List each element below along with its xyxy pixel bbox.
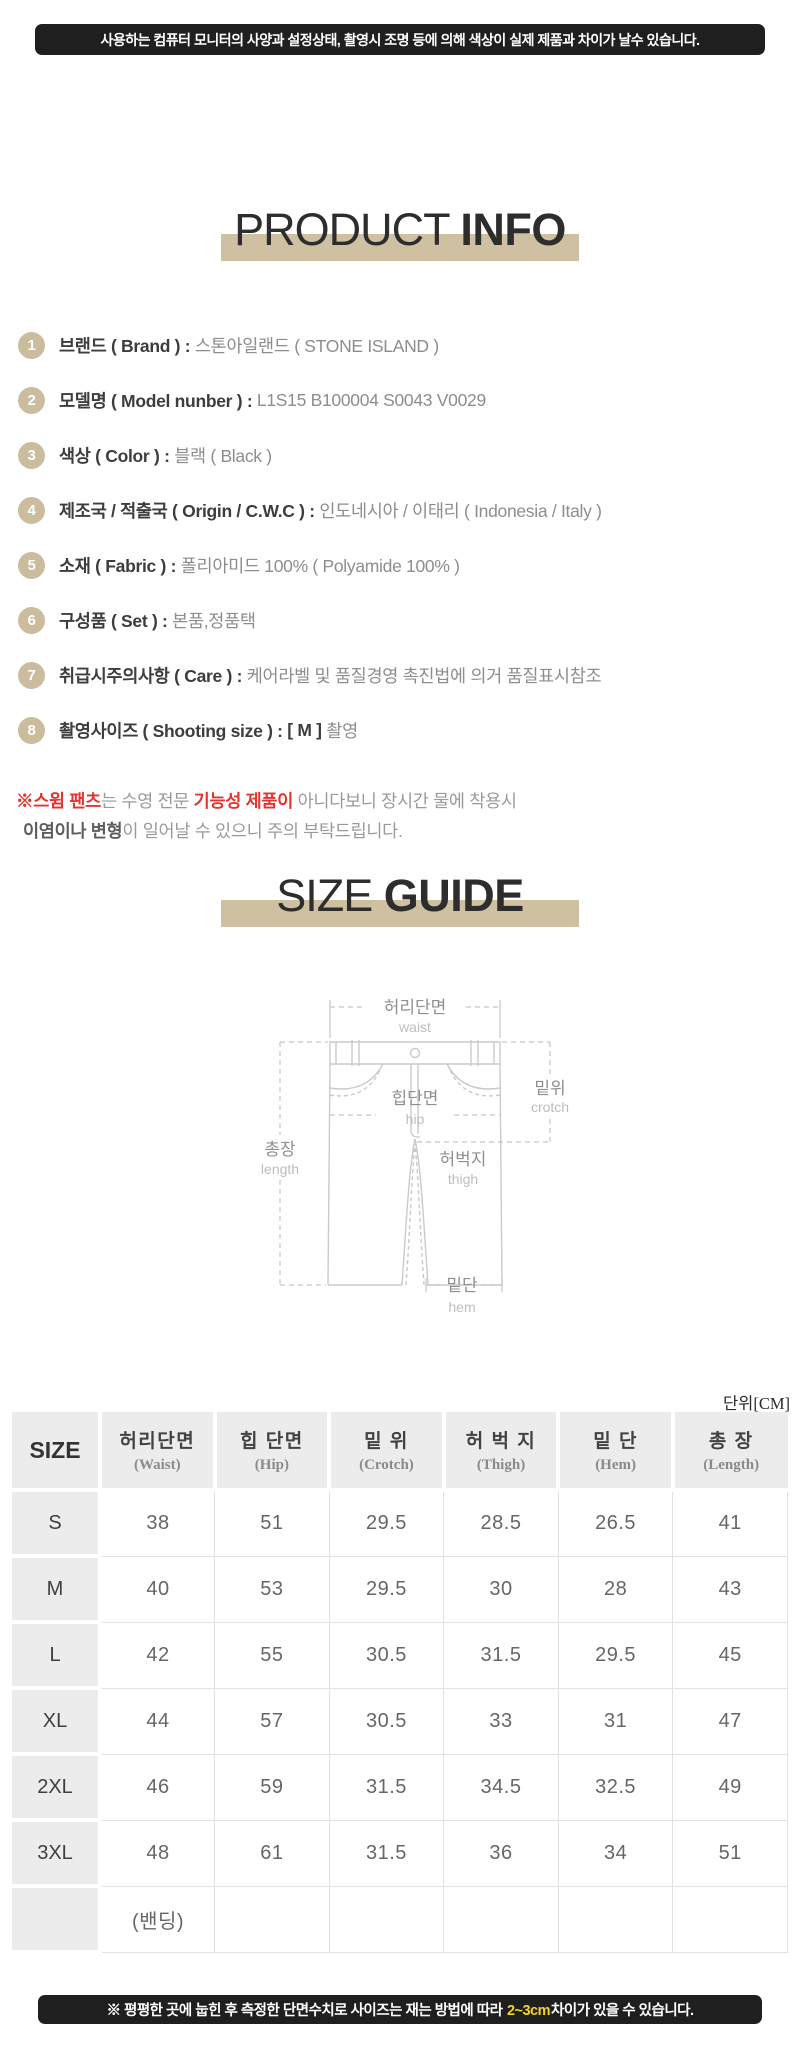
size-cell bbox=[12, 1886, 100, 1952]
size-table-row: S385129.528.526.541 bbox=[12, 1490, 788, 1556]
value-cell: 48 bbox=[100, 1820, 215, 1886]
number-badge: 6 bbox=[18, 607, 45, 634]
thigh-label-en: thigh bbox=[448, 1171, 478, 1187]
info-label: 브랜드 ( Brand ) : bbox=[59, 333, 195, 358]
info-item-brand: 1브랜드 ( Brand ) : 스톤아일랜드 ( STONE ISLAND ) bbox=[0, 318, 800, 373]
hem-label-ko: 밑단 bbox=[446, 1276, 478, 1295]
banner-highlight: 2~3cm bbox=[506, 2003, 551, 2019]
value-cell: 47 bbox=[673, 1688, 788, 1754]
header-label-ko: 힙 단면 bbox=[217, 1426, 328, 1453]
value-cell bbox=[329, 1886, 444, 1952]
size-table-header-cell: 총 장(Length) bbox=[673, 1412, 788, 1490]
header-label-en: (Hem) bbox=[560, 1457, 671, 1474]
title-light-part: PRODUCT bbox=[234, 204, 460, 255]
value-cell: 33 bbox=[444, 1688, 559, 1754]
info-value: 인도네시아 / 이태리 ( Indonesia / Italy ) bbox=[319, 498, 601, 523]
waist-label-en: waist bbox=[398, 1019, 431, 1035]
size-table-header-cell: 허리단면(Waist) bbox=[100, 1412, 215, 1490]
hem-label-en: hem bbox=[448, 1299, 475, 1315]
info-item-care: 7취급시주의사항 ( Care ) : 케어라벨 및 품질경영 촉진법에 의거 … bbox=[0, 648, 800, 703]
notice-text: ※ 평평한 곳에 눕힌 후 측정한 단면수치로 사이즈는 재는 방법에 따라 2… bbox=[106, 1999, 693, 2020]
value-cell: 32.5 bbox=[558, 1754, 673, 1820]
warning-line-2: 이염이나 변형이 일어날 수 있으니 주의 부탁드립니다. bbox=[16, 816, 517, 846]
value-cell: 31.5 bbox=[329, 1820, 444, 1886]
warning-gray-text: 아니다보니 장시간 물에 착용시 bbox=[293, 791, 517, 811]
length-label-en: length bbox=[261, 1161, 299, 1177]
value-cell: 45 bbox=[673, 1622, 788, 1688]
number-badge: 8 bbox=[18, 717, 45, 744]
size-cell: 2XL bbox=[12, 1754, 100, 1820]
value-cell: 30 bbox=[444, 1556, 559, 1622]
info-value: L1S15 B100004 S0043 V0029 bbox=[257, 390, 486, 411]
number-badge: 4 bbox=[18, 497, 45, 524]
value-cell: 29.5 bbox=[329, 1490, 444, 1556]
title-bold-part: INFO bbox=[460, 204, 566, 255]
size-table-header-row: SIZE허리단면(Waist)힙 단면(Hip)밑 위(Crotch)허 벅 지… bbox=[12, 1412, 788, 1490]
value-cell: 26.5 bbox=[558, 1490, 673, 1556]
header-label-ko: 허 벅 지 bbox=[446, 1426, 557, 1453]
length-label-ko: 총장 bbox=[264, 1140, 296, 1159]
value-cell bbox=[444, 1886, 559, 1952]
info-value: 블랙 ( Black ) bbox=[174, 443, 272, 468]
crotch-label-en: crotch bbox=[531, 1099, 569, 1115]
banner-text-post: 차이가 있을 수 있습니다. bbox=[551, 2003, 694, 2019]
value-cell: 41 bbox=[673, 1490, 788, 1556]
value-cell: 31.5 bbox=[444, 1622, 559, 1688]
product-info-list: 1브랜드 ( Brand ) : 스톤아일랜드 ( STONE ISLAND )… bbox=[0, 318, 800, 758]
header-label-en: (Length) bbox=[675, 1457, 788, 1474]
size-guide-title: SIZE GUIDE bbox=[0, 866, 800, 928]
value-cell: 28 bbox=[558, 1556, 673, 1622]
measurement-tolerance-banner: ※ 평평한 곳에 눕힌 후 측정한 단면수치로 사이즈는 재는 방법에 따라 2… bbox=[38, 1995, 762, 2024]
unit-label: 단위[CM] bbox=[723, 1390, 790, 1414]
size-cell: S bbox=[12, 1490, 100, 1556]
value-cell: 55 bbox=[215, 1622, 330, 1688]
header-label-en: (Hip) bbox=[217, 1457, 328, 1474]
header-label-en: (Thigh) bbox=[446, 1457, 557, 1474]
value-cell: 30.5 bbox=[329, 1622, 444, 1688]
info-label: 제조국 / 적출국 ( Origin / C.W.C ) : bbox=[59, 498, 319, 523]
header-label-en: (Waist) bbox=[102, 1457, 213, 1474]
header-label-en: (Crotch) bbox=[331, 1457, 442, 1474]
info-value-dark: [ M ] bbox=[287, 720, 326, 741]
number-badge: 2 bbox=[18, 387, 45, 414]
info-item-color: 3색상 ( Color ) : 블랙 ( Black ) bbox=[0, 428, 800, 483]
value-cell: 51 bbox=[673, 1820, 788, 1886]
info-label: 소재 ( Fabric ) : bbox=[59, 553, 181, 578]
value-cell: 36 bbox=[444, 1820, 559, 1886]
info-item-set: 6구성품 ( Set ) : 본품,정품택 bbox=[0, 593, 800, 648]
info-value: 폴리아미드 100% ( Polyamide 100% ) bbox=[181, 553, 460, 578]
thigh-label-ko: 허벅지 bbox=[440, 1150, 487, 1169]
warning-gray-text: 는 수영 전문 bbox=[101, 791, 194, 811]
value-cell: 43 bbox=[673, 1556, 788, 1622]
value-cell: 38 bbox=[100, 1490, 215, 1556]
size-table-header-cell: 밑 위(Crotch) bbox=[329, 1412, 444, 1490]
info-label: 취급시주의사항 ( Care ) : bbox=[59, 663, 247, 688]
value-cell: 30.5 bbox=[329, 1688, 444, 1754]
value-cell bbox=[558, 1886, 673, 1952]
info-label: 모델명 ( Model nunber ) : bbox=[59, 388, 257, 413]
value-cell: 61 bbox=[215, 1820, 330, 1886]
info-value: 촬영 bbox=[326, 718, 358, 743]
warning-red-text: ※스윔 팬츠 bbox=[16, 791, 101, 811]
header-label-ko: 밑 단 bbox=[560, 1426, 671, 1453]
pants-measurement-diagram: 허리단면 waist 힙단면 hip 밑위 crotch 총장 length 허… bbox=[140, 952, 660, 1350]
product-info-title: PRODUCT INFO bbox=[0, 200, 800, 262]
info-item-origin: 4제조국 / 적출국 ( Origin / C.W.C ) : 인도네시아 / … bbox=[0, 483, 800, 538]
title-bold-part: GUIDE bbox=[384, 870, 524, 921]
value-cell: 46 bbox=[100, 1754, 215, 1820]
warning-red-text: 기능성 제품이 bbox=[194, 791, 293, 811]
size-table-header-cell: 힙 단면(Hip) bbox=[215, 1412, 330, 1490]
info-value: 케어라벨 및 품질경영 촉진법에 의거 품질표시참조 bbox=[247, 663, 602, 688]
size-table-row: 2XL465931.534.532.549 bbox=[12, 1754, 788, 1820]
banner-text-pre: ※ 평평한 곳에 눕힌 후 측정한 단면수치로 사이즈는 재는 방법에 따라 bbox=[106, 2003, 506, 2019]
size-table-row: (밴딩) bbox=[12, 1886, 788, 1952]
header-label-ko: 허리단면 bbox=[102, 1426, 213, 1453]
info-label: 촬영사이즈 ( Shooting size ) : bbox=[59, 718, 287, 743]
size-cell: 3XL bbox=[12, 1820, 100, 1886]
value-cell: 44 bbox=[100, 1688, 215, 1754]
header-label-ko: 총 장 bbox=[675, 1426, 788, 1453]
warning-line-1: ※스윔 팬츠는 수영 전문 기능성 제품이 아니다보니 장시간 물에 착용시 bbox=[16, 786, 517, 816]
value-cell: 57 bbox=[215, 1688, 330, 1754]
product-detail-page: 사용하는 컴퓨터 모니터의 사양과 설정상태, 촬영시 조명 등에 의해 색상이… bbox=[0, 0, 800, 2065]
info-value: 스톤아일랜드 ( STONE ISLAND ) bbox=[195, 333, 439, 358]
value-cell: 49 bbox=[673, 1754, 788, 1820]
info-item-shooting-size: 8촬영사이즈 ( Shooting size ) : [ M ] 촬영 bbox=[0, 703, 800, 758]
value-cell: 31 bbox=[558, 1688, 673, 1754]
value-cell: 40 bbox=[100, 1556, 215, 1622]
value-cell: 59 bbox=[215, 1754, 330, 1820]
size-cell: L bbox=[12, 1622, 100, 1688]
size-cell: XL bbox=[12, 1688, 100, 1754]
info-item-fabric: 5소재 ( Fabric ) : 폴리아미드 100% ( Polyamide … bbox=[0, 538, 800, 593]
number-badge: 7 bbox=[18, 662, 45, 689]
info-label: 색상 ( Color ) : bbox=[59, 443, 174, 468]
value-cell: 53 bbox=[215, 1556, 330, 1622]
size-table-row: XL445730.5333147 bbox=[12, 1688, 788, 1754]
warning-gray-text: 이 일어날 수 있으니 주의 부탁드립니다. bbox=[122, 821, 402, 841]
hip-label-ko: 힙단면 bbox=[392, 1089, 439, 1108]
warning-dark-text: 이염이나 변형 bbox=[23, 821, 122, 841]
number-badge: 3 bbox=[18, 442, 45, 469]
info-value: 본품,정품택 bbox=[172, 608, 256, 633]
measurement-lines bbox=[280, 1000, 550, 1292]
value-cell: 29.5 bbox=[329, 1556, 444, 1622]
number-badge: 5 bbox=[18, 552, 45, 579]
size-table-wrap: SIZE허리단면(Waist)힙 단면(Hip)밑 위(Crotch)허 벅 지… bbox=[12, 1412, 788, 1954]
info-item-model: 2모델명 ( Model nunber ) : L1S15 B100004 S0… bbox=[0, 373, 800, 428]
waist-label-ko: 허리단면 bbox=[384, 998, 447, 1017]
notice-text: 사용하는 컴퓨터 모니터의 사양과 설정상태, 촬영시 조명 등에 의해 색상이… bbox=[101, 30, 700, 50]
size-table-row: M405329.5302843 bbox=[12, 1556, 788, 1622]
value-cell: 28.5 bbox=[444, 1490, 559, 1556]
value-cell bbox=[673, 1886, 788, 1952]
info-label: 구성품 ( Set ) : bbox=[59, 608, 172, 633]
monitor-color-notice-banner: 사용하는 컴퓨터 모니터의 사양과 설정상태, 촬영시 조명 등에 의해 색상이… bbox=[35, 24, 765, 55]
value-cell: 34.5 bbox=[444, 1754, 559, 1820]
value-cell: 29.5 bbox=[558, 1622, 673, 1688]
size-table-row: L425530.531.529.545 bbox=[12, 1622, 788, 1688]
value-cell bbox=[215, 1886, 330, 1952]
value-cell: 31.5 bbox=[329, 1754, 444, 1820]
number-badge: 1 bbox=[18, 332, 45, 359]
size-table-header-cell: 허 벅 지(Thigh) bbox=[444, 1412, 559, 1490]
swim-pants-warning: ※스윔 팬츠는 수영 전문 기능성 제품이 아니다보니 장시간 물에 착용시 이… bbox=[16, 786, 517, 846]
crotch-label-ko: 밑위 bbox=[534, 1079, 565, 1098]
size-table: SIZE허리단면(Waist)힙 단면(Hip)밑 위(Crotch)허 벅 지… bbox=[12, 1412, 788, 1954]
title-light-part: SIZE bbox=[276, 870, 384, 921]
size-table-header-size: SIZE bbox=[12, 1412, 100, 1490]
size-table-header-cell: 밑 단(Hem) bbox=[558, 1412, 673, 1490]
value-cell: 51 bbox=[215, 1490, 330, 1556]
value-cell: (밴딩) bbox=[100, 1886, 215, 1952]
header-label-ko: 밑 위 bbox=[331, 1426, 442, 1453]
size-cell: M bbox=[12, 1556, 100, 1622]
value-cell: 42 bbox=[100, 1622, 215, 1688]
size-table-row: 3XL486131.5363451 bbox=[12, 1820, 788, 1886]
hip-label-en: hip bbox=[406, 1111, 425, 1127]
value-cell: 34 bbox=[558, 1820, 673, 1886]
